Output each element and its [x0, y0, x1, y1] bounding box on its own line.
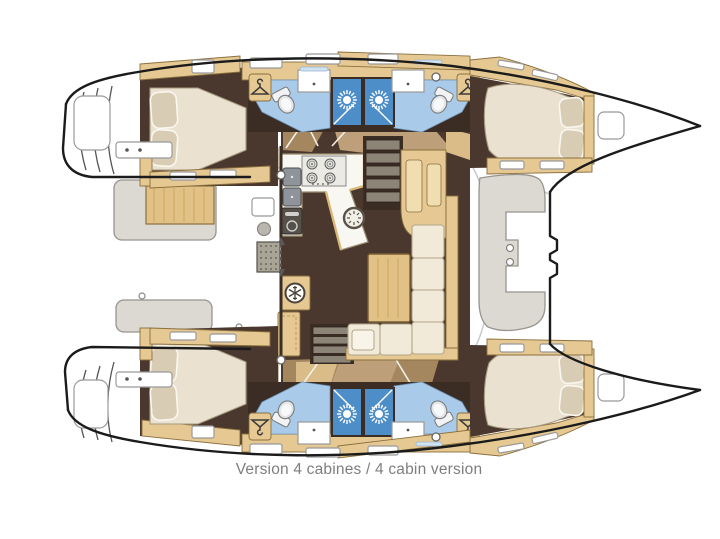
- forward-crossbeam: [550, 192, 557, 344]
- transom-bracket: [116, 372, 172, 387]
- cockpit-door-mat: [257, 242, 280, 272]
- shower-stall: [364, 78, 394, 126]
- page-caption: Version 4 cabines / 4 cabin version: [236, 461, 483, 478]
- aft-cockpit: [114, 180, 242, 332]
- deck-fitting: [277, 356, 285, 364]
- settee-back-strip: [446, 196, 458, 356]
- shower-icon: [369, 90, 389, 110]
- shower-stall: [332, 78, 362, 126]
- cockpit-bench-starboard: [116, 300, 212, 332]
- bow-deck-hatch: [598, 112, 624, 139]
- transom-step: [74, 380, 108, 428]
- stairs-to-port-hull: [363, 136, 403, 210]
- deck-fitting: [432, 73, 440, 81]
- floorplan-svg: Version 4 cabines / 4 cabin version: [0, 0, 720, 539]
- deck-fitting: [277, 171, 285, 179]
- transom-bracket: [116, 142, 172, 158]
- cockpit-seat-small: [252, 198, 274, 216]
- shower-icon: [337, 90, 357, 110]
- table-foot: [258, 223, 271, 236]
- forward-cabin-starboard: [470, 339, 624, 456]
- deck-fitting: [432, 433, 440, 441]
- oven-icon: [282, 208, 302, 234]
- cockpit-table: [146, 186, 214, 224]
- forward-bench: [479, 174, 545, 330]
- stove-icon: [302, 156, 346, 186]
- settee-corner-pad: [352, 330, 374, 350]
- salon-table: [368, 254, 410, 322]
- boat-floorplan-canvas: Version 4 cabines / 4 cabin version: [0, 0, 720, 539]
- forward-cockpit: [479, 174, 545, 330]
- round-hatch-icon: [344, 208, 364, 228]
- bathroom-pair-port: [242, 62, 479, 132]
- snowflake-icon: [286, 284, 305, 303]
- transom-step: [74, 96, 110, 150]
